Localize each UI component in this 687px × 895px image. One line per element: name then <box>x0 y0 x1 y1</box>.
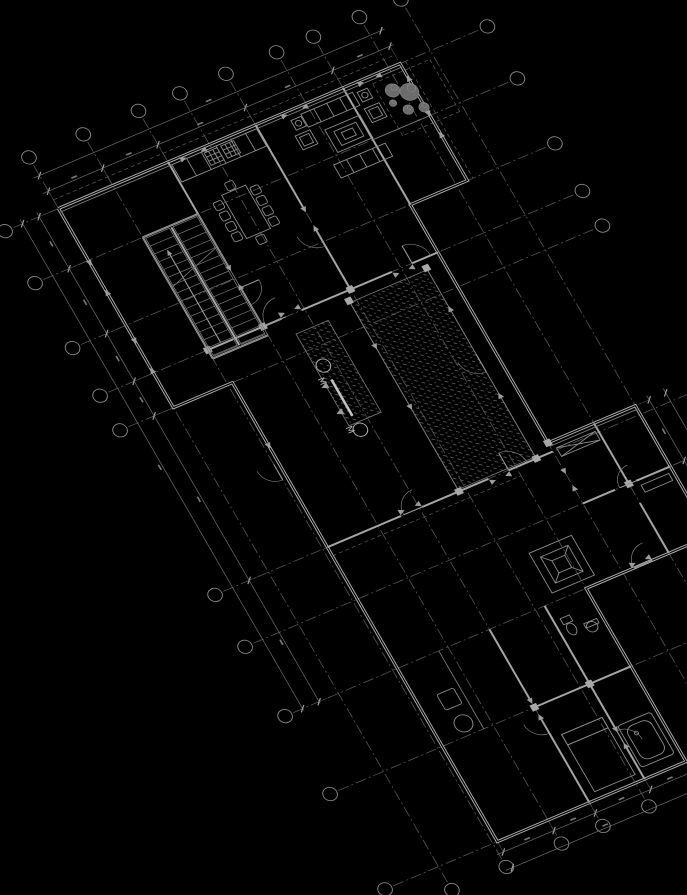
grid-bubble <box>391 0 411 8</box>
dimension-line <box>37 212 321 703</box>
partition-wall <box>550 409 637 446</box>
stair-tread <box>218 294 242 304</box>
grid-bubble <box>267 44 287 62</box>
grid-bubble <box>375 881 395 895</box>
opening-marker-triangle <box>570 484 579 492</box>
stair-tread <box>155 244 179 254</box>
partition-wall <box>439 651 484 729</box>
furniture-block <box>255 195 268 206</box>
column <box>454 487 464 496</box>
grid-bubble <box>477 18 497 36</box>
grid-bubble <box>90 387 110 405</box>
floor-plan-canvas[interactable]: ММ <box>0 0 687 895</box>
dimension-text-mark <box>667 777 673 779</box>
door-swing-arc <box>297 229 325 254</box>
stair-tread <box>187 240 211 250</box>
opening-marker-triangle <box>560 468 569 476</box>
furniture-line <box>314 109 322 122</box>
overhang-dash-line <box>405 61 473 178</box>
dimension-extension <box>333 70 341 84</box>
opening-marker-triangle <box>225 265 234 273</box>
furniture-block <box>255 234 268 245</box>
door-swing-arc <box>257 464 283 487</box>
dimension-text-mark <box>71 176 77 178</box>
tree-symbol <box>397 81 423 104</box>
furniture-block <box>299 134 313 147</box>
stair-mid-wall <box>171 227 239 345</box>
grid-bubble <box>442 881 462 895</box>
dimension-text-mark <box>280 640 283 645</box>
dimension-extension <box>319 696 332 701</box>
interior-wall <box>583 490 615 504</box>
furniture-line <box>340 98 348 111</box>
furniture-line <box>540 554 551 564</box>
stair-tread <box>236 326 260 336</box>
dimension-extension <box>103 168 111 182</box>
door-leaf <box>315 229 325 246</box>
dimension-extension <box>48 191 56 205</box>
dimension-extension <box>245 108 253 122</box>
furniture-block <box>219 210 232 221</box>
stair-arrow-head <box>165 249 173 256</box>
dimension-line <box>497 770 687 855</box>
grid-bubble <box>170 85 190 103</box>
dimension-extension <box>390 46 398 60</box>
grid-bubble <box>205 586 225 604</box>
dimension-text-mark <box>197 122 203 124</box>
stair-tread <box>191 248 215 258</box>
door-swing-arc <box>402 238 430 263</box>
opening-marker-triangle <box>536 713 545 721</box>
dimension-text-mark <box>570 818 576 820</box>
grid-bubble <box>129 102 149 120</box>
furniture-circle <box>451 712 477 735</box>
furniture-block <box>225 221 238 232</box>
walls-layer <box>58 51 687 867</box>
grid-bubble <box>216 65 236 83</box>
dimension-extension <box>638 400 649 405</box>
dimension-text-mark <box>357 55 363 57</box>
furniture-block <box>291 116 307 130</box>
dimension-extension <box>158 145 166 159</box>
door-leaf <box>404 507 422 515</box>
furniture-block <box>231 231 244 242</box>
dimension-tick <box>329 67 338 75</box>
tree-symbol <box>383 82 403 100</box>
door-leaf <box>241 280 259 288</box>
door-leaf <box>634 560 652 568</box>
appliance-grid-line <box>225 149 238 154</box>
hatch-layer <box>292 270 535 514</box>
grid-bubble <box>19 149 39 167</box>
furniture-block <box>267 215 280 226</box>
interior-wall <box>594 423 629 484</box>
furniture-block <box>357 88 373 102</box>
stair-tread <box>196 255 220 265</box>
appliance-grid-line <box>209 156 222 161</box>
hatched-deck-area <box>296 320 381 425</box>
furniture-block <box>341 128 356 140</box>
stair-flight <box>173 216 265 344</box>
dimension-layer <box>0 1 687 895</box>
dimension-text-mark <box>662 429 665 434</box>
grid-bubble <box>110 422 130 440</box>
hatched-deck-area <box>350 270 535 490</box>
grid-bubble <box>572 182 592 200</box>
dimension-extension <box>107 328 120 333</box>
stair-tread <box>178 224 202 234</box>
dimension-text-mark <box>285 85 291 87</box>
dimension-tick <box>154 141 163 149</box>
door-swing-arc <box>241 280 269 305</box>
appliance-grid-line <box>223 145 236 150</box>
stair-tread <box>205 271 229 281</box>
column <box>345 285 355 294</box>
dimension-tick <box>18 220 27 228</box>
opening-marker-triangle <box>311 224 320 232</box>
opening-marker-triangle <box>300 206 309 214</box>
dimension-tick <box>35 172 44 180</box>
dimension-extension <box>154 410 167 415</box>
grid-axis-line <box>43 82 509 280</box>
furniture-line <box>187 158 197 175</box>
furniture-line <box>359 154 367 167</box>
grid-bubble <box>0 222 15 240</box>
furniture-block <box>529 535 594 593</box>
grid-axis-line <box>293 515 687 713</box>
stair-tread <box>150 236 174 246</box>
grid-bubble <box>235 638 255 656</box>
furniture-block <box>249 184 262 195</box>
dimension-text-mark <box>524 838 530 840</box>
grid-bubble <box>545 135 565 153</box>
overhang-dash-line <box>332 476 521 556</box>
dimension-extension <box>69 263 82 268</box>
grid-bubble <box>303 28 323 46</box>
furniture-line <box>347 160 355 173</box>
column <box>585 679 595 688</box>
dimension-tick <box>241 104 250 112</box>
interior-wall <box>545 606 615 727</box>
stair-break-line <box>162 247 227 288</box>
dimension-line <box>43 45 394 194</box>
door-leaf <box>540 718 549 734</box>
stair-tread <box>209 279 233 289</box>
dimension-tick <box>298 705 307 713</box>
section-label: М <box>343 425 356 436</box>
appliance-grid-line <box>206 152 219 157</box>
planting-layer <box>380 75 431 123</box>
furniture-line <box>551 573 562 583</box>
dimension-tick <box>645 396 654 404</box>
dimension-line <box>647 396 687 535</box>
markers-layer <box>56 62 687 836</box>
dimension-text-mark <box>602 824 608 826</box>
dimension-text-mark <box>126 153 132 155</box>
cad-viewport[interactable]: ММ <box>0 0 687 895</box>
dimension-text-mark <box>158 465 161 470</box>
interior-wall <box>327 516 401 547</box>
column <box>529 703 539 712</box>
furniture-block <box>334 122 364 145</box>
dimension-tick <box>386 42 395 50</box>
door-leaf <box>266 317 286 326</box>
grid-bubble <box>25 274 45 292</box>
overhang-layer <box>53 44 640 581</box>
opening-marker-triangle <box>293 304 302 312</box>
furniture-block <box>261 205 274 216</box>
furniture-block <box>369 106 383 119</box>
dimension-text-mark <box>619 797 625 799</box>
overhang-dash-line <box>430 60 460 112</box>
stair-tread <box>214 287 238 297</box>
dimension-text-mark <box>140 397 143 402</box>
interior-wall <box>636 466 670 480</box>
stair-direction-arrow <box>168 251 221 343</box>
door-leaf <box>402 246 412 263</box>
door-swing-arc <box>524 718 550 741</box>
grid-bubble <box>320 785 340 803</box>
grid-bubble <box>63 339 83 357</box>
column <box>421 264 431 273</box>
dimension-extension <box>249 575 262 580</box>
furniture-block <box>437 688 463 711</box>
dimension-text-mark <box>197 497 200 502</box>
furniture-line <box>327 103 335 116</box>
interior-wall <box>489 629 529 698</box>
dimension-text-mark <box>116 356 119 361</box>
stair-tread <box>227 310 251 320</box>
dimension-extension <box>39 211 52 216</box>
furniture-block <box>213 200 226 211</box>
stair-tread <box>182 232 206 242</box>
grid-bubble <box>507 70 527 88</box>
dimension-tick <box>65 265 74 273</box>
grid-bubble <box>349 8 369 26</box>
dimension-extension <box>673 460 684 465</box>
grid-bubble <box>275 707 295 725</box>
dimension-text-mark <box>206 99 212 101</box>
furniture-block <box>325 115 373 152</box>
furniture-block <box>562 717 636 791</box>
grid-bubble <box>592 217 612 235</box>
interior-wall <box>412 252 438 263</box>
furniture-block <box>364 103 387 123</box>
stair-tread <box>232 318 256 328</box>
dimension-text-mark <box>50 241 53 246</box>
dimension-text-mark <box>84 300 87 305</box>
furniture-line <box>245 133 255 150</box>
furniture-block <box>540 545 583 583</box>
stair-layer <box>143 214 268 359</box>
interior-wall <box>640 503 669 553</box>
furniture-block <box>295 130 318 150</box>
stair-tread <box>223 302 247 312</box>
furniture-circle <box>361 91 370 99</box>
grid-axes-layer <box>0 0 687 895</box>
dimension-extension <box>134 376 147 381</box>
furniture-line <box>568 728 609 745</box>
dimension-tick <box>661 389 670 397</box>
furniture-circle <box>584 620 600 634</box>
furniture-circle <box>294 119 303 127</box>
stair-tread <box>200 263 224 273</box>
dimension-tick <box>377 27 386 35</box>
grid-bubble <box>73 126 93 144</box>
